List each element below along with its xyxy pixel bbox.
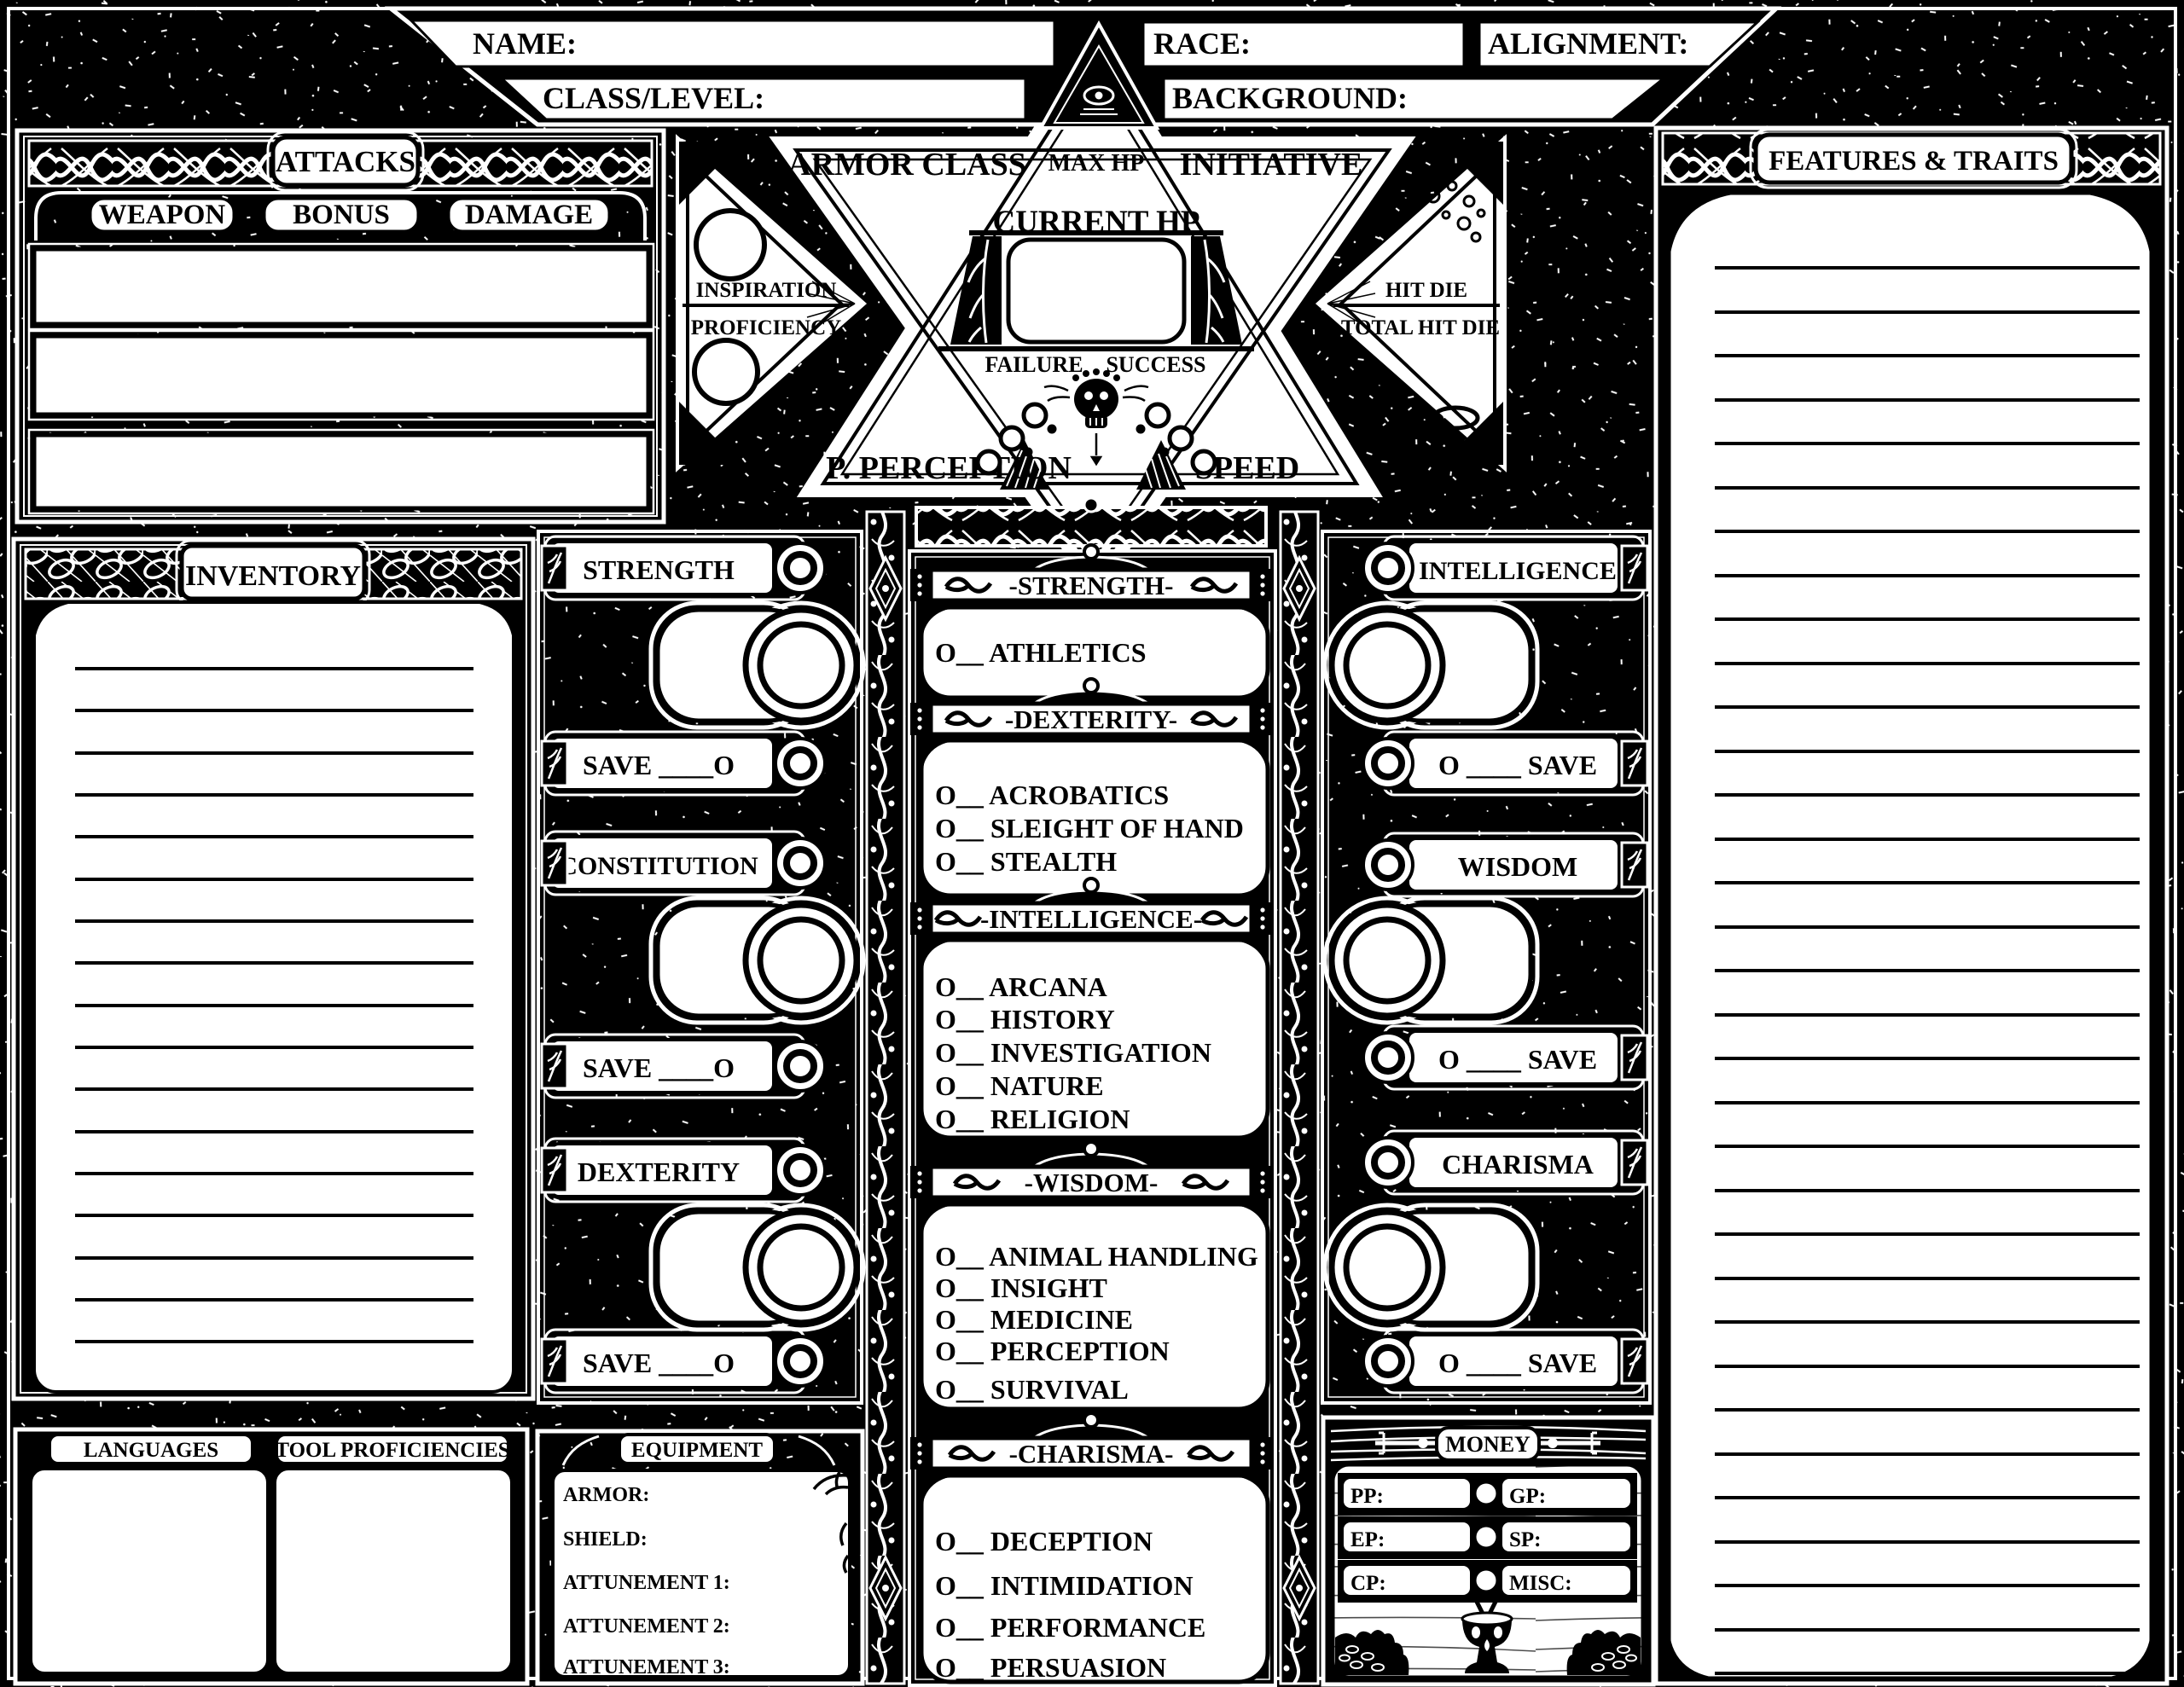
svg-text:HIT DIE: HIT DIE [1385,279,1467,302]
svg-text:O__ SURVIVAL: O__ SURVIVAL [935,1374,1129,1405]
svg-text:WISDOM: WISDOM [1458,851,1577,882]
svg-text:PP:: PP: [1350,1485,1384,1508]
svg-text:-INTELLIGENCE-: -INTELLIGENCE- [980,904,1202,934]
svg-text:O__ INTIMIDATION: O__ INTIMIDATION [935,1570,1194,1601]
svg-text:SP:: SP: [1509,1528,1542,1551]
svg-text:-CHARISMA-: -CHARISMA- [1009,1439,1174,1469]
svg-text:CURRENT HP: CURRENT HP [993,205,1200,240]
svg-text:INITIATIVE: INITIATIVE [1180,147,1363,183]
svg-text:O__ PERSUASION: O__ PERSUASION [935,1652,1166,1683]
svg-text:PROFICIENCY: PROFICIENCY [691,316,841,339]
svg-text:FEATURES & TRAITS: FEATURES & TRAITS [1769,146,2059,177]
svg-text:P. PERCEPTION: P. PERCEPTION [826,450,1072,486]
svg-text:EP:: EP: [1350,1528,1385,1551]
svg-text:-WISDOM-: -WISDOM- [1025,1168,1159,1197]
svg-text:INVENTORY: INVENTORY [185,560,361,592]
svg-text:FAILURE: FAILURE [985,352,1083,377]
svg-text:CP:: CP: [1350,1572,1386,1595]
svg-text:ALIGNMENT:: ALIGNMENT: [1488,26,1688,61]
svg-text:-DEXTERITY-: -DEXTERITY- [1005,704,1177,734]
svg-text:O__ NATURE: O__ NATURE [935,1070,1104,1101]
svg-text:CHARISMA: CHARISMA [1442,1149,1594,1180]
svg-text:LANGUAGES: LANGUAGES [84,1439,218,1462]
svg-text:O ____ SAVE: O ____ SAVE [1438,1044,1597,1075]
svg-text:O__ ACROBATICS: O__ ACROBATICS [935,780,1169,810]
svg-text:INTELLIGENCE: INTELLIGENCE [1419,557,1617,585]
svg-text:BACKGROUND:: BACKGROUND: [1172,81,1408,115]
svg-text:DAMAGE: DAMAGE [465,200,593,230]
svg-text:O__ PERFORMANCE: O__ PERFORMANCE [935,1612,1205,1643]
svg-text:O__ ANIMAL HANDLING: O__ ANIMAL HANDLING [935,1241,1258,1272]
svg-text:STRENGTH: STRENGTH [583,554,735,585]
svg-text:O ____ SAVE: O ____ SAVE [1438,750,1597,780]
svg-text:-STRENGTH-: -STRENGTH- [1009,571,1174,600]
svg-text:SUCCESS: SUCCESS [1106,352,1205,377]
svg-text:O__ RELIGION: O__ RELIGION [935,1104,1130,1134]
svg-text:INSPIRATION: INSPIRATION [696,279,837,302]
svg-text:GP:: GP: [1509,1485,1546,1508]
svg-text:O__ HISTORY: O__ HISTORY [935,1004,1115,1035]
svg-text:ARMOR:: ARMOR: [563,1484,649,1506]
svg-text:ATTUNEMENT 2:: ATTUNEMENT 2: [563,1615,730,1638]
svg-text:CONSTITUTION: CONSTITUTION [559,852,758,880]
svg-text:O__ INSIGHT: O__ INSIGHT [935,1272,1107,1303]
svg-text:O__ DECEPTION: O__ DECEPTION [935,1526,1153,1557]
svg-text:ATTACKS: ATTACKS [276,145,415,178]
svg-text:NAME:: NAME: [473,26,577,61]
svg-text:O__ ATHLETICS: O__ ATHLETICS [935,637,1146,668]
svg-text:SAVE ____O: SAVE ____O [583,750,735,780]
svg-text:CLASS/LEVEL:: CLASS/LEVEL: [543,81,764,115]
svg-text:WEAPON: WEAPON [99,200,226,230]
svg-text:O__ INVESTIGATION: O__ INVESTIGATION [935,1037,1211,1068]
svg-text:ATTUNEMENT 1:: ATTUNEMENT 1: [563,1572,730,1594]
svg-text:MONEY: MONEY [1445,1432,1531,1457]
svg-text:EQUIPMENT: EQUIPMENT [631,1439,764,1462]
svg-text:O__ ARCANA: O__ ARCANA [935,971,1107,1002]
svg-text:MISC:: MISC: [1509,1572,1572,1595]
svg-text:O__ MEDICINE: O__ MEDICINE [935,1304,1133,1335]
svg-text:O__ PERCEPTION: O__ PERCEPTION [935,1336,1170,1366]
svg-text:ATTUNEMENT 3:: ATTUNEMENT 3: [563,1656,730,1678]
svg-text:O ____ SAVE: O ____ SAVE [1438,1348,1597,1378]
svg-text:BONUS: BONUS [293,200,390,230]
svg-text:O__ STEALTH: O__ STEALTH [935,846,1117,877]
svg-text:TOTAL HIT DIE: TOTAL HIT DIE [1341,316,1500,339]
svg-text:TOOL PROFICIENCIES: TOOL PROFICIENCIES [275,1439,509,1462]
svg-text:RACE:: RACE: [1153,26,1251,61]
svg-text:SAVE ____O: SAVE ____O [583,1052,735,1083]
svg-text:SAVE ____O: SAVE ____O [583,1348,735,1378]
svg-text:O__ SLEIGHT OF HAND: O__ SLEIGHT OF HAND [935,813,1244,843]
svg-text:SHIELD:: SHIELD: [563,1528,648,1551]
svg-text:DEXTERITY: DEXTERITY [578,1157,740,1187]
svg-text:ARMOR CLASS: ARMOR CLASS [787,147,1026,183]
svg-text:MAX HP: MAX HP [1048,150,1145,177]
